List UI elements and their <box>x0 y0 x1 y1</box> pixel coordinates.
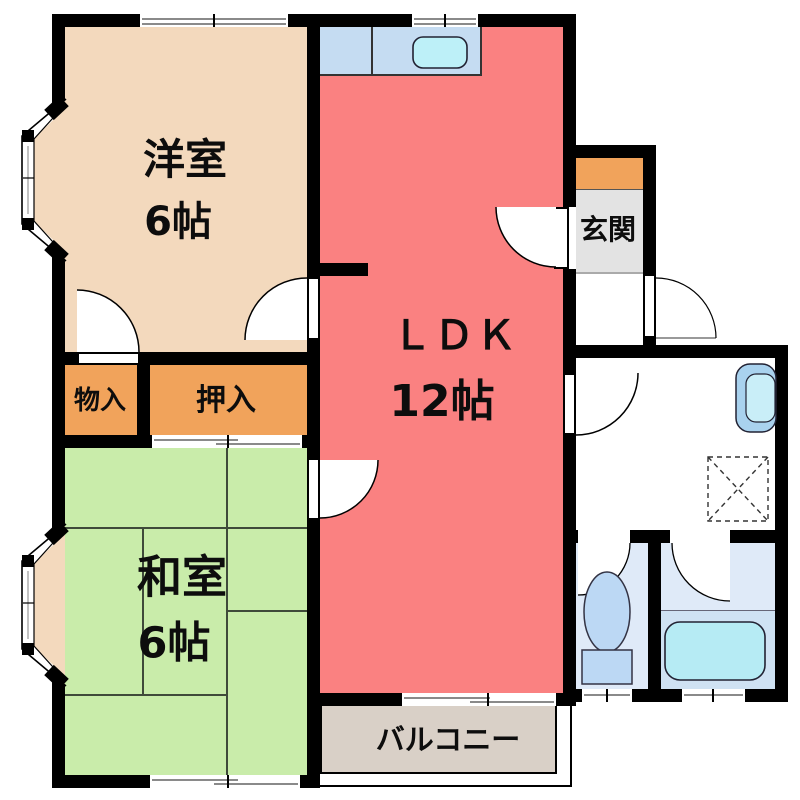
door-arc-ldk-hall <box>496 207 556 267</box>
bathtub <box>665 622 765 680</box>
entrance-label: 玄関 <box>580 216 636 244</box>
toilet <box>582 572 632 684</box>
washing-machine-space <box>708 457 768 521</box>
door-arc-storage <box>77 290 139 352</box>
room-japanese-label: 和室 <box>137 555 227 600</box>
room-closet-label: 押入 <box>196 386 256 416</box>
door-arc-japanese <box>320 460 378 518</box>
room-western-label: 洋室 <box>143 139 227 181</box>
door-arc-bath <box>672 543 730 601</box>
door-arc-entrance <box>656 278 716 338</box>
room-storage-label: 物入 <box>74 388 126 414</box>
room-japanese-size: 6帖 <box>138 623 211 666</box>
bay-window-western <box>22 99 66 261</box>
door-arc-washroom <box>576 373 638 435</box>
room-ldk-label: ＬＤＫ <box>392 316 518 356</box>
washbasin <box>736 364 776 432</box>
room-western-size: 6帖 <box>144 202 212 242</box>
floor-plan: 洋室 6帖 ＬＤＫ 12帖 和室 6帖 物入 押入 玄関 バルコニー <box>0 0 800 800</box>
balcony-label: バルコニー <box>376 726 520 755</box>
bay-window-japanese <box>22 524 66 686</box>
door-arc-western <box>245 278 307 340</box>
room-ldk-size: 12帖 <box>389 380 494 424</box>
kitchen-sink <box>413 37 467 68</box>
